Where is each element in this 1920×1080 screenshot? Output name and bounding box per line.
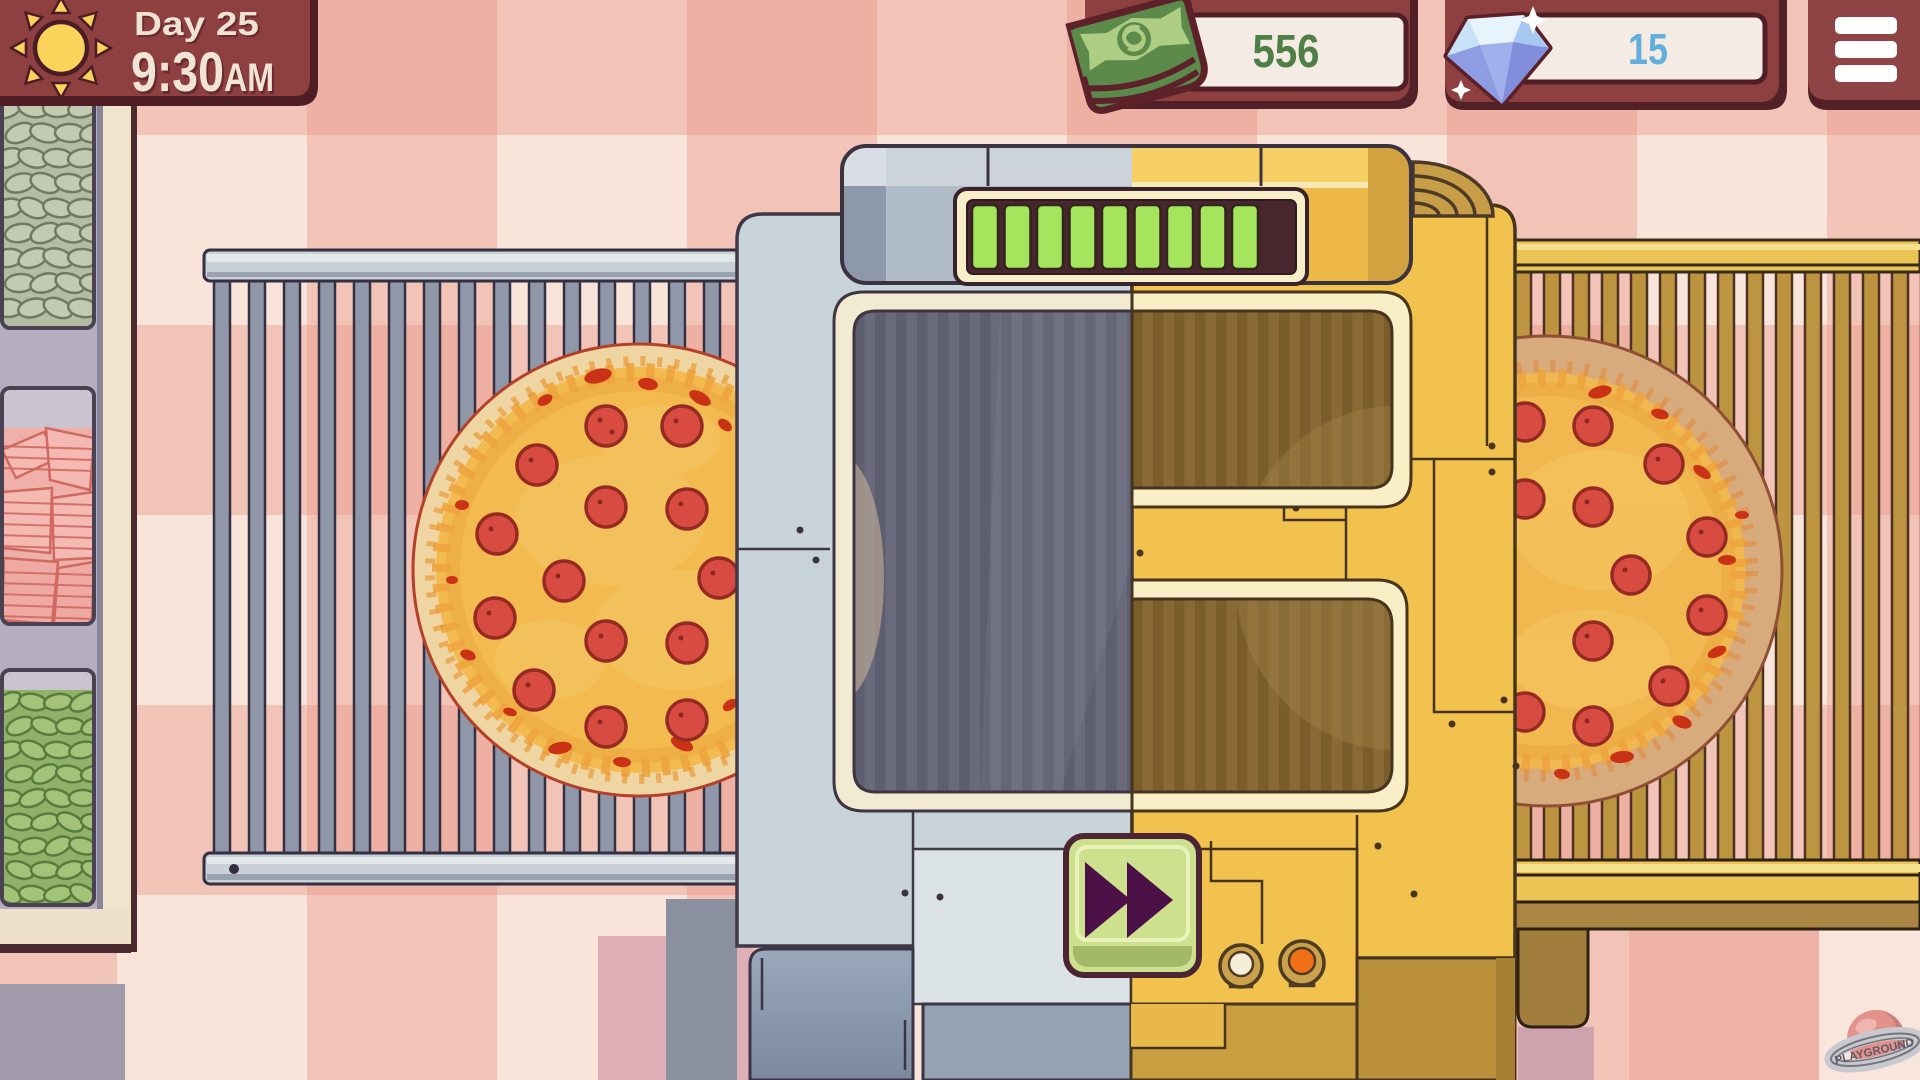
svg-text:Day 25: Day 25 [134, 5, 259, 42]
svg-text:15: 15 [1628, 25, 1668, 74]
svg-text:556: 556 [1253, 25, 1320, 77]
